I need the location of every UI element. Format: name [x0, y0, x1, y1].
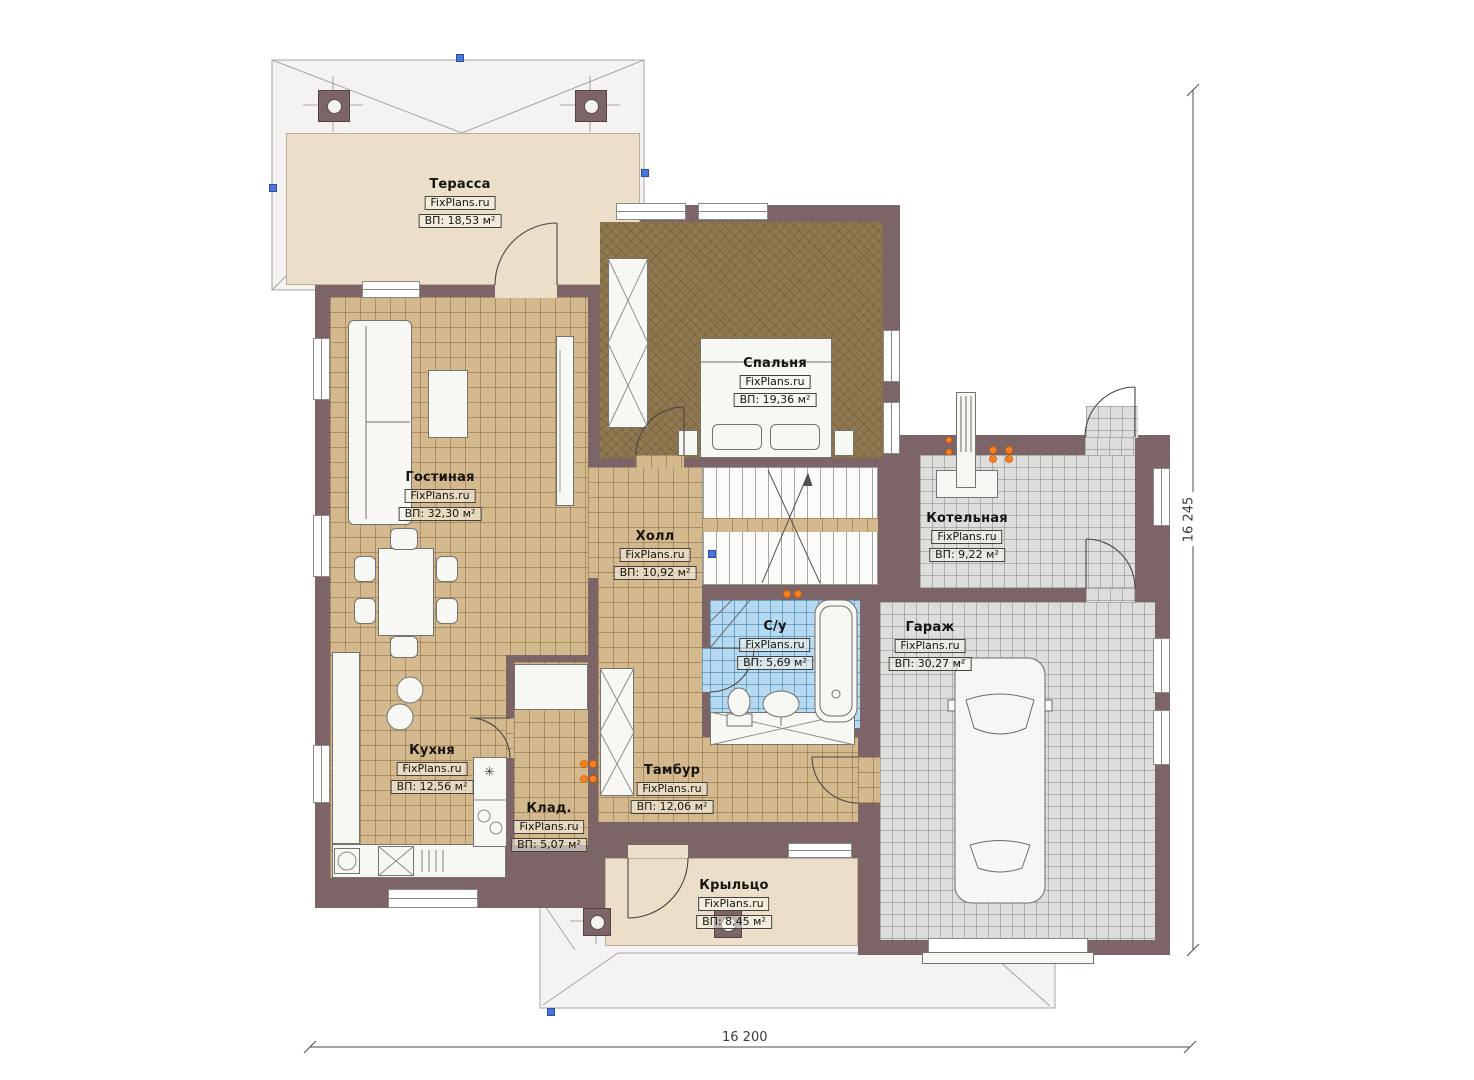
window-bedroom-right-1 — [883, 330, 900, 382]
floor-plan-canvas: ✳ — [0, 0, 1474, 1080]
room-label-terrace: Терасса FixPlans.ru ВП: 18,53 м² — [419, 178, 502, 228]
room-area: ВП: 12,56 м² — [391, 780, 474, 794]
window-living-top — [362, 281, 420, 298]
door-opening-boiler-entry — [1085, 437, 1135, 455]
room-label-vestibule: Тамбур FixPlans.ru ВП: 12,06 м² — [631, 764, 714, 814]
washing-machine — [334, 848, 360, 874]
window-bedroom-right-2 — [883, 402, 900, 454]
room-label-hall: Холл FixPlans.ru ВП: 10,92 м² — [614, 530, 697, 580]
door-opening-boiler-garage — [1086, 588, 1135, 602]
room-area: ВП: 10,92 м² — [614, 566, 697, 580]
tv-stand — [556, 336, 574, 506]
room-label-porch: Крыльцо FixPlans.ru ВП: 8,45 м² — [696, 879, 772, 929]
door-opening-vestibule-garage — [858, 757, 880, 803]
cad-handle[interactable] — [456, 54, 464, 62]
door-opening-storage — [506, 718, 514, 758]
cad-handle[interactable] — [708, 550, 716, 558]
brand-label: FixPlans.ru — [619, 548, 690, 562]
room-name: Холл — [614, 530, 697, 544]
brand-label: FixPlans.ru — [739, 375, 810, 389]
porch-column-icon — [583, 908, 611, 936]
room-label-living: Гостиная FixPlans.ru ВП: 32,30 м² — [399, 471, 482, 521]
dining-chair — [354, 556, 376, 582]
room-area: ВП: 8,45 м² — [696, 915, 772, 929]
room-name: Спальня — [734, 357, 817, 371]
window-living-left-2 — [313, 515, 330, 577]
room-name: Крыльцо — [696, 879, 772, 893]
window-garage-right-1 — [1153, 638, 1170, 693]
room-area: ВП: 18,53 м² — [419, 214, 502, 228]
dining-chair — [354, 598, 376, 624]
window-boiler-right — [1153, 468, 1170, 526]
vestibule-wardrobe — [600, 668, 634, 796]
room-area: ВП: 12,06 м² — [631, 800, 714, 814]
bed-pillow — [770, 424, 820, 450]
dining-chair — [436, 556, 458, 582]
window-kitchen-bottom — [388, 889, 478, 908]
dining-table — [378, 548, 434, 636]
brand-label: FixPlans.ru — [931, 530, 1002, 544]
room-name: Терасса — [419, 178, 502, 192]
door-opening-porch — [628, 845, 688, 858]
room-name: Котельная — [926, 512, 1008, 526]
window-porch-wall — [788, 843, 852, 858]
kitchen-counter-left — [332, 652, 360, 844]
room-label-boiler: Котельная FixPlans.ru ВП: 9,22 м² — [926, 512, 1008, 562]
chimney-shaft — [956, 392, 976, 488]
cad-handle[interactable] — [547, 1008, 555, 1016]
window-kitchen-left — [313, 745, 330, 803]
nightstand — [834, 430, 854, 456]
cad-handle[interactable] — [641, 169, 649, 177]
dining-chair — [390, 636, 418, 658]
garage-door-leaf — [922, 952, 1094, 964]
brand-label: FixPlans.ru — [636, 782, 707, 796]
door-opening-bedroom — [636, 455, 684, 468]
window-bedroom-top-1 — [616, 203, 686, 220]
dimension-label-height: 16 245 — [1181, 493, 1196, 547]
terrace-column-icon — [318, 90, 350, 122]
brand-label: FixPlans.ru — [739, 638, 810, 652]
room-name: Клад. — [511, 802, 587, 816]
window-living-left-1 — [313, 338, 330, 400]
brand-label: FixPlans.ru — [424, 196, 495, 210]
room-area: ВП: 9,22 м² — [929, 548, 1005, 562]
storage-shelves — [514, 664, 588, 710]
room-name: С/у — [737, 620, 813, 634]
dimension-label-width: 16 200 — [718, 1030, 772, 1045]
room-name: Гостиная — [399, 471, 482, 485]
dining-chair — [436, 598, 458, 624]
brand-label: FixPlans.ru — [513, 820, 584, 834]
door-opening-bathroom — [702, 648, 710, 692]
dining-chair — [390, 528, 418, 550]
room-label-garage: Гараж FixPlans.ru ВП: 30,27 м² — [889, 621, 972, 671]
room-label-storage: Клад. FixPlans.ru ВП: 5,07 м² — [511, 802, 587, 852]
cad-handle[interactable] — [269, 184, 277, 192]
bed-pillow — [712, 424, 762, 450]
room-area: ВП: 30,27 м² — [889, 657, 972, 671]
window-garage-right-2 — [1153, 710, 1170, 765]
window-bedroom-top-2 — [698, 203, 768, 220]
room-area: ВП: 19,36 м² — [734, 393, 817, 407]
brand-label: FixPlans.ru — [894, 639, 965, 653]
living-hall-opening — [588, 467, 598, 578]
room-name: Тамбур — [631, 764, 714, 778]
stairs-landing-strip — [702, 518, 878, 532]
bathroom-cabinet — [710, 712, 855, 745]
stove-burner-icon: ✳ — [484, 766, 495, 779]
brand-label: FixPlans.ru — [404, 489, 475, 503]
kitchen-sink-unit — [378, 846, 414, 876]
coffee-table — [428, 370, 468, 438]
room-label-kitchen: Кухня FixPlans.ru ВП: 12,56 м² — [391, 744, 474, 794]
room-area: ВП: 5,69 м² — [737, 656, 813, 670]
wall-garage-left — [858, 845, 880, 955]
room-label-bathroom: С/у FixPlans.ru ВП: 5,69 м² — [737, 620, 813, 670]
room-floor-vestibule — [702, 737, 858, 822]
room-label-bedroom: Спальня FixPlans.ru ВП: 19,36 м² — [734, 357, 817, 407]
room-name: Кухня — [391, 744, 474, 758]
room-area: ВП: 32,30 м² — [399, 507, 482, 521]
bedroom-wardrobe — [608, 258, 648, 428]
terrace-column-icon — [575, 90, 607, 122]
door-opening-terrace — [495, 283, 557, 298]
brand-label: FixPlans.ru — [396, 762, 467, 776]
nightstand — [678, 430, 698, 456]
entry-landing — [1086, 406, 1138, 438]
room-area: ВП: 5,07 м² — [511, 838, 587, 852]
room-name: Гараж — [889, 621, 972, 635]
brand-label: FixPlans.ru — [698, 897, 769, 911]
